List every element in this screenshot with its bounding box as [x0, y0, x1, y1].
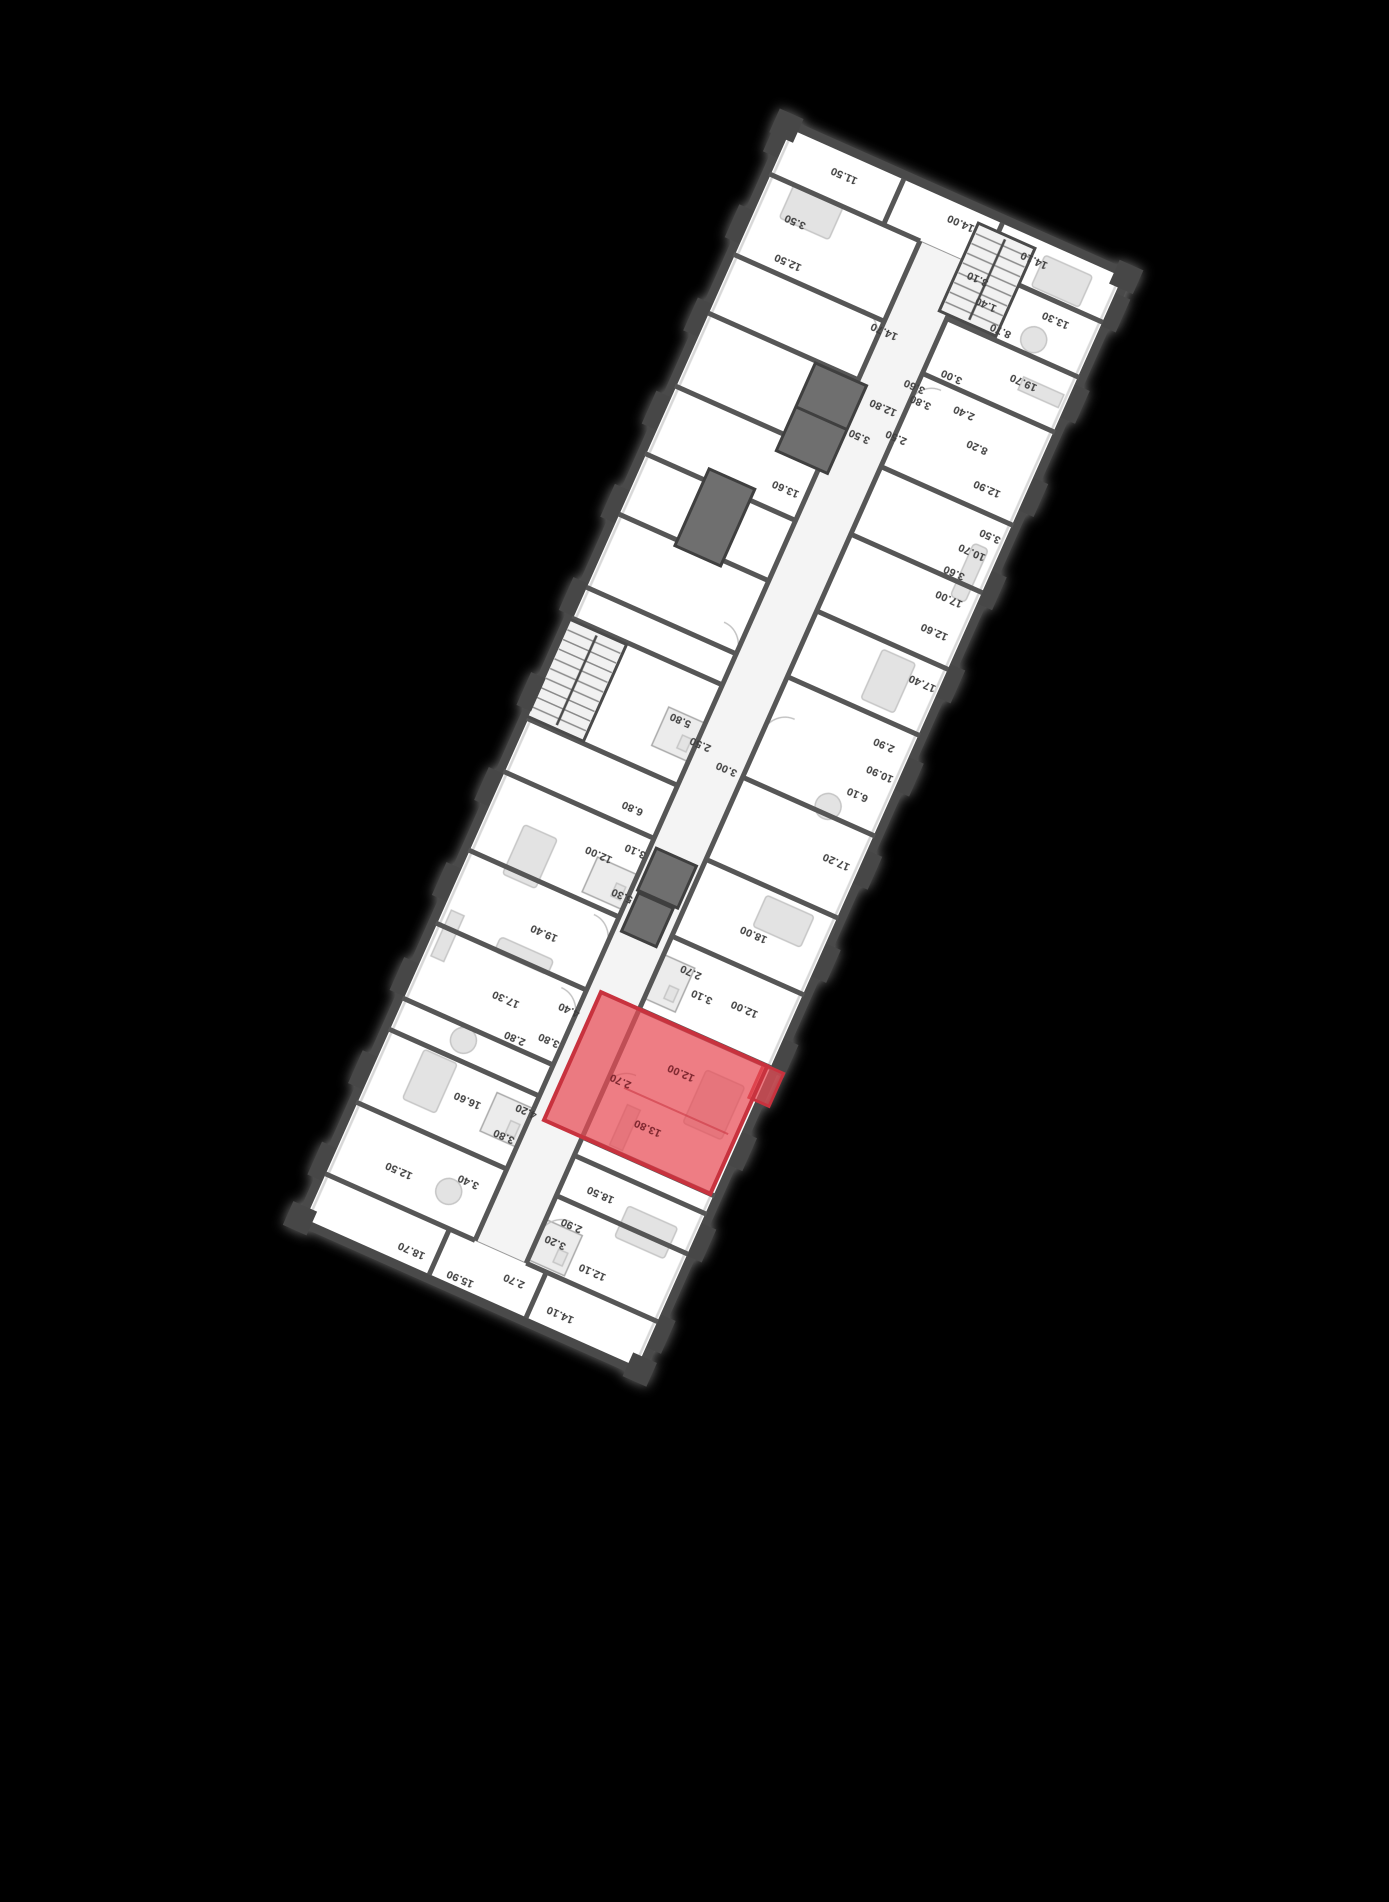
floor-plan-svg: 14.1015.9018.702.7012.103.202.9012.503.4… [294, 118, 1133, 1378]
floor-plan[interactable]: 14.1015.9018.702.7012.103.202.9012.503.4… [294, 118, 1133, 1378]
floor-plan-stage: 14.1015.9018.702.7012.103.202.9012.503.4… [0, 0, 1389, 1902]
